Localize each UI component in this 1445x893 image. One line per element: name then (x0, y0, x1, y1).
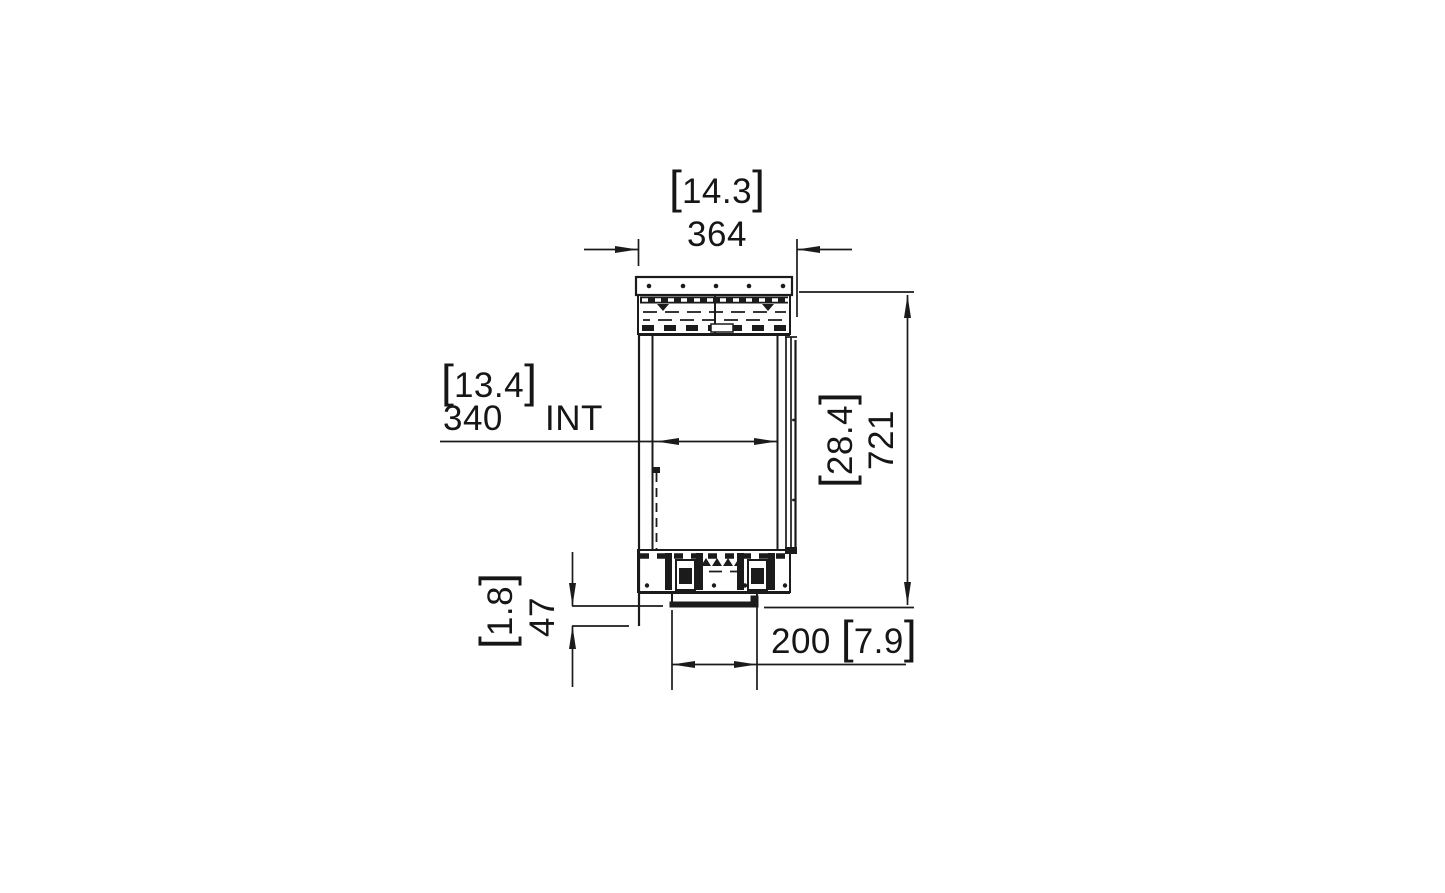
top-insulation-band (638, 295, 790, 335)
base-burner-band (638, 550, 790, 593)
band-marker (657, 304, 669, 311)
dim-overall-width-mm: 364 (687, 215, 747, 254)
arrowhead-down-icon (904, 582, 911, 605)
arrowhead-left-icon (672, 661, 695, 668)
base-marker (723, 558, 733, 566)
left-wall-tab (653, 467, 660, 473)
bracket-core (679, 568, 692, 584)
arrowhead-left-icon (797, 246, 820, 253)
arrowhead-up-icon (904, 295, 911, 318)
dim-internal-width-mm: 340 (443, 399, 503, 438)
dim-base-drop-inches: [1.8] (470, 573, 522, 649)
dim-overall-height-inches: [28.4] (810, 392, 862, 488)
panel-fastener-dot (792, 419, 795, 422)
screw-hole-dot (681, 284, 686, 289)
dim-spigot-width: 200[7.9] (672, 597, 917, 690)
panel-fastener-dot (792, 499, 795, 502)
dim-overall-height-mm: 721 (862, 410, 901, 470)
arrowhead-left-icon (656, 438, 679, 445)
base-marker (712, 558, 722, 566)
arrowhead-right-icon (734, 661, 757, 668)
screw-hole-dot (714, 284, 719, 289)
dim-overall-width-inches: [14.3] (669, 161, 765, 213)
bracket-bar (696, 553, 703, 590)
firebox-section-view (636, 277, 797, 626)
burner-bracket-left (665, 553, 703, 590)
dim-base-drop: [1.8] 47 (470, 552, 663, 687)
dim-spigot-width-text: 200[7.9] (771, 611, 917, 663)
arrowhead-down-icon (569, 583, 576, 606)
technical-drawing-page: [14.3] 364 [13.4] 340 INT [28.4] 721 [1.… (0, 0, 1445, 893)
dim-overall-width: [14.3] 364 (584, 161, 852, 317)
screw-hole-dot (647, 284, 652, 289)
base-screw-dot (645, 583, 649, 587)
dim-internal-width-label: INT (545, 399, 603, 438)
band-marker (762, 304, 774, 311)
flange-screw-holes (647, 284, 786, 289)
arrowhead-right-icon (754, 438, 777, 445)
base-screw-dot (712, 583, 716, 587)
base-screw-dot (783, 583, 787, 587)
burner-bracket-right (737, 553, 775, 590)
bracket-bar (665, 553, 672, 590)
band-center-clip (711, 324, 733, 332)
spigot-bottom-plate (670, 602, 759, 608)
arrowhead-up-icon (569, 626, 576, 649)
bracket-core (751, 568, 764, 584)
base-screw-dot (743, 583, 747, 587)
dim-base-drop-mm: 47 (523, 597, 562, 637)
drawing-canvas: [14.3] 364 [13.4] 340 INT [28.4] 721 [1.… (0, 0, 1445, 893)
screw-hole-dot (747, 284, 752, 289)
screw-hole-dot (781, 284, 786, 289)
dim-internal-width: [13.4] 340 INT (440, 355, 777, 445)
bottom-spigot (670, 592, 759, 608)
bracket-bar (768, 553, 775, 590)
arrowhead-right-icon (615, 246, 638, 253)
bracket-bar (737, 553, 744, 590)
